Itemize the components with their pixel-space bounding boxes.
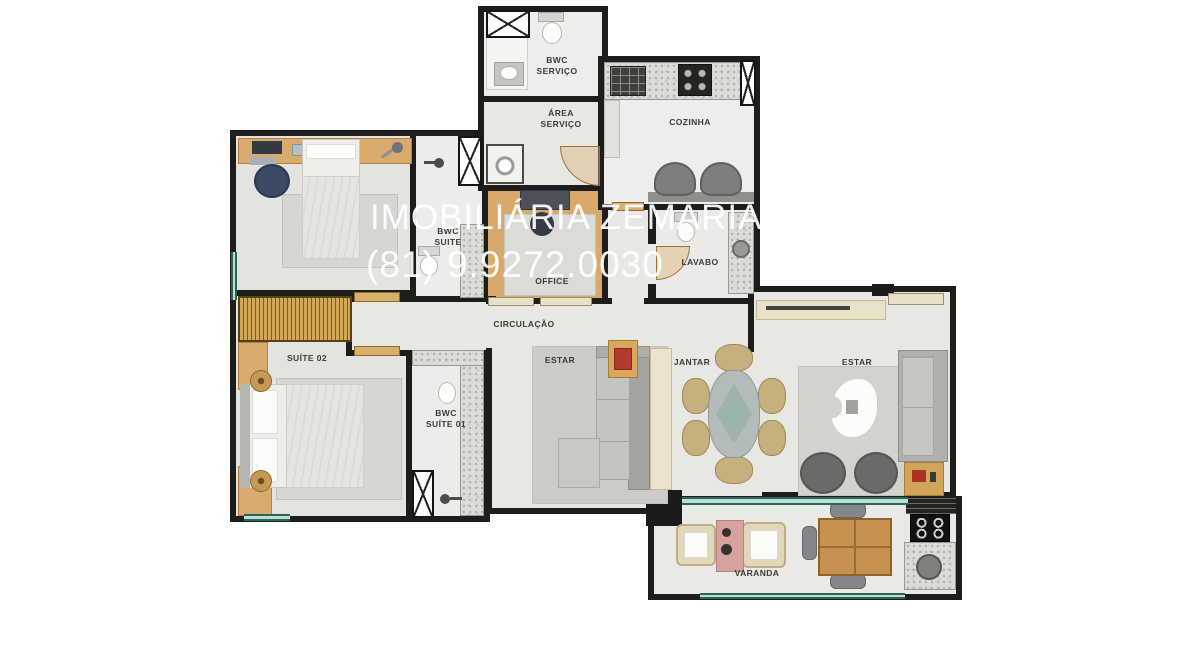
washing-machine [486,144,524,184]
label-cozinha: COZINHA [648,117,732,128]
varanda-table-seam-v [854,520,856,574]
ottoman-2-cushion [750,530,778,560]
laptop [252,141,282,154]
shower-door-bwc01-icon [412,470,434,518]
dining-chair-4 [682,420,710,456]
sink-lavabo [732,240,750,258]
sofa-tv-seat [902,356,934,456]
shower-arm-bwc-suite [424,161,436,164]
label-line: SERVIÇO [541,119,582,129]
dining-chair-2 [715,456,753,484]
pouf-2 [854,452,898,494]
label-suite-02: SUÍTE 02 [260,353,354,364]
vanity-bwc-01 [460,352,484,516]
single-bed-blanket [302,176,360,259]
door-office-b [540,297,592,306]
door-office-a [488,297,534,306]
window-varanda-front [700,593,905,599]
label-estar-right: ESTAR [815,357,899,368]
grill-cooktop [910,514,950,542]
watermark-line-1: IMOBILIÁRIA ZEMARIA ET [370,198,818,238]
window-varanda-living [682,497,908,505]
ottoman-1-cushion [684,532,708,558]
red-decor [912,470,926,482]
label-line: SUÍTE 01 [426,419,466,429]
entry-door-main [888,293,944,305]
label-bwc-servico: BWC SERVIÇO [512,55,602,76]
label-circulacao: CIRCULAÇÃO [474,319,574,330]
pouf-1 [800,452,846,494]
single-bed-pillow [306,144,356,159]
bar-stool-1 [654,162,696,196]
kidney-table-tray [846,400,858,414]
dining-chair-6 [758,420,786,456]
door-suite-02 [354,346,400,356]
toilet-bwc-servico-tank [538,12,564,22]
bottle-decor [930,472,936,482]
shower-arm-bwc-01 [450,497,462,500]
label-line: ÁREA [548,108,574,118]
kitchen-service-door-icon [740,60,756,106]
nightstand-b [250,470,272,492]
grill-sink [916,554,942,580]
tv-panel [650,348,672,490]
buffet-sideboard [756,300,886,320]
double-bed-headboard [240,384,250,488]
label-line: SERVIÇO [537,66,578,76]
label-line: BWC [435,408,457,418]
double-bed-pillow-a [252,390,278,434]
label-varanda: VARANDA [710,568,804,579]
bar-stool-2 [700,162,742,196]
sofa-chaise [558,438,600,488]
counter-top-bwc-01 [412,350,484,366]
label-jantar: JANTAR [650,357,734,368]
label-bwc-suite-01: BWC SUÍTE 01 [406,408,486,429]
shower-door-bwc-suite-icon [458,136,482,186]
double-bed-blanket [286,384,364,488]
label-lavabo: LAVABO [658,257,742,268]
label-line: BWC [546,55,568,65]
label-area-servico: ÁREA SERVIÇO [516,108,606,129]
shower-head-bwc-01-icon [440,494,450,504]
wardrobe-suite-02 [238,296,352,342]
window-suite-1 [231,252,237,300]
door-suite-1 [354,292,400,302]
dining-chair-3 [682,378,710,414]
red-cushion [614,348,632,370]
toilet-bwc-servico-bowl [542,22,562,44]
varanda-chair-left [802,526,817,560]
label-estar-left: ESTAR [518,355,602,366]
office-chair-suite-1 [254,164,290,198]
desk-lamp-head [392,142,403,153]
candle-2 [721,544,732,555]
toilet-bwc-01 [438,382,456,404]
kitchen-sink [610,66,646,96]
service-entry-door-icon [486,10,530,38]
nightstand-a [250,370,272,392]
kitchen-side-counter [604,100,620,158]
stove [678,64,712,96]
floor-plan-canvas: BWC SERVIÇO ÁREA SERVIÇO COZINHA LAVABO … [0,0,1190,650]
kidney-table-notch [824,396,842,418]
varanda-chair-bottom [830,574,866,589]
grill-vent [906,498,956,514]
opening-hall-corridor [612,296,644,310]
dining-chair-5 [758,378,786,414]
watermark-line-2: (81) 9.9272.0030 [366,244,664,286]
candle-1 [722,528,731,537]
buffet-detail [766,306,850,310]
window-suite-02 [244,514,290,521]
